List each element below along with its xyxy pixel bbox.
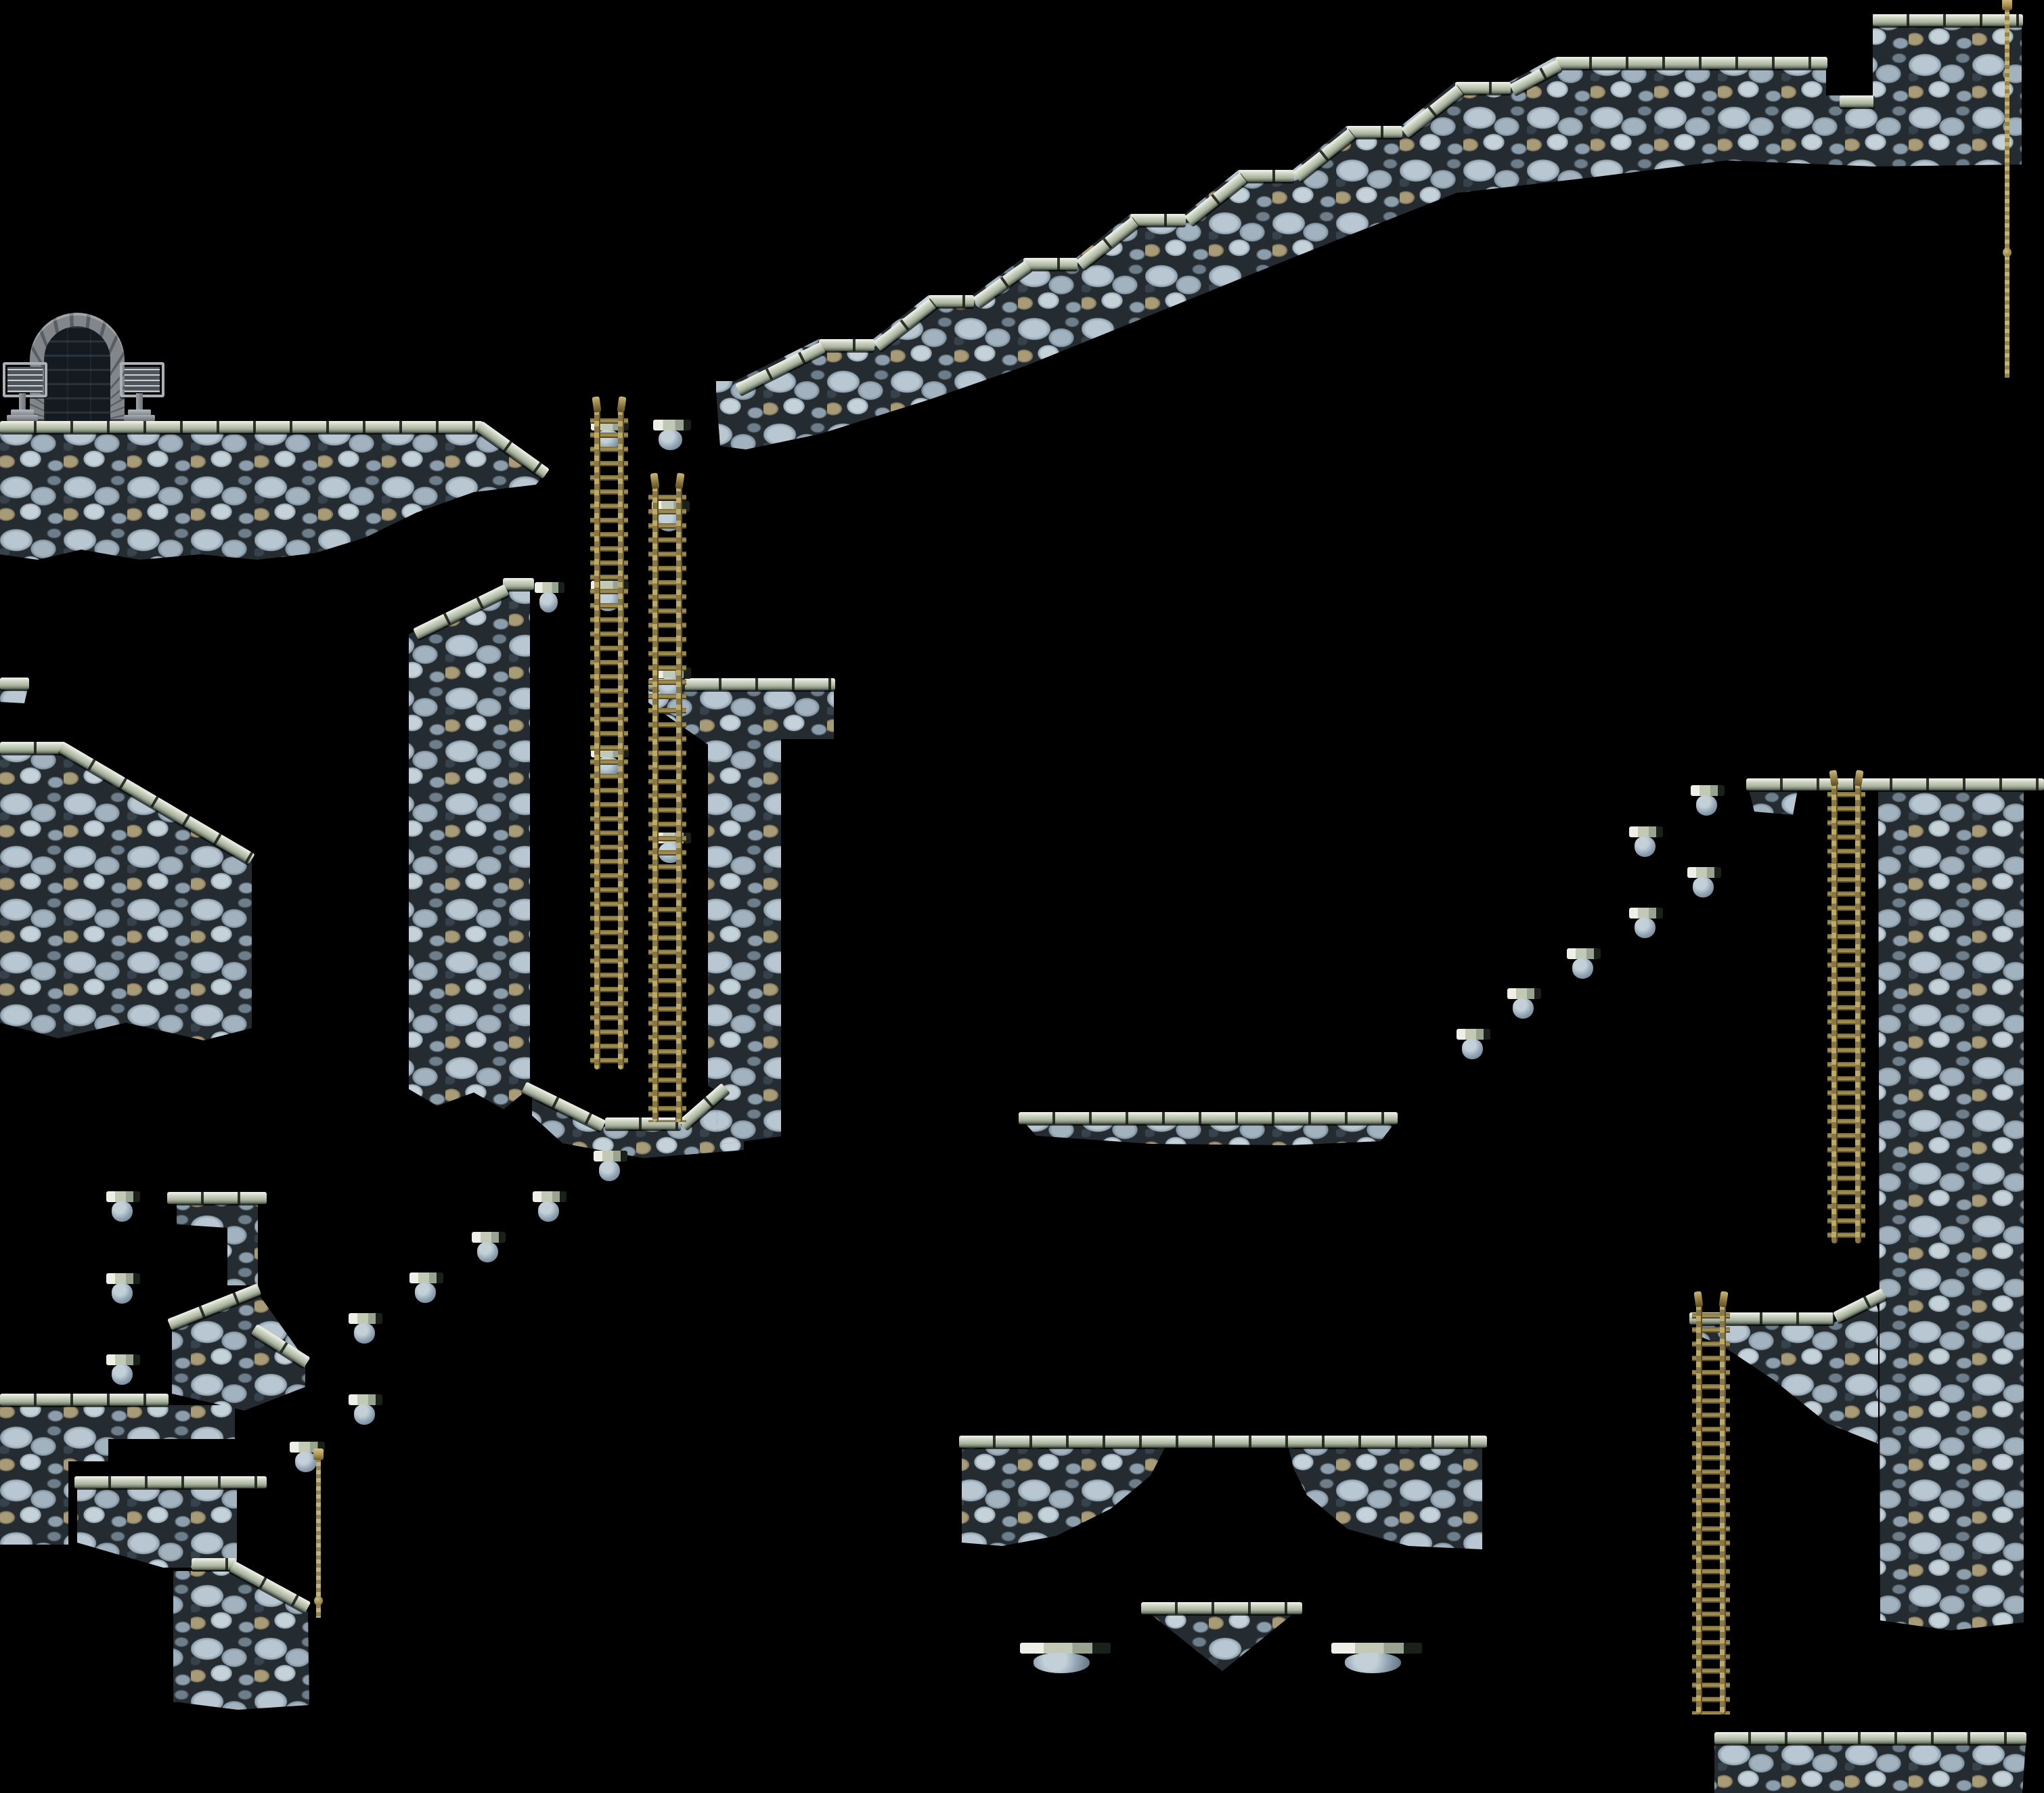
ladder-rail-left xyxy=(1831,783,1838,1243)
stepping-stone-cap xyxy=(1331,1643,1422,1654)
stepping-stone-cap xyxy=(1507,988,1541,999)
ladder-rail-right xyxy=(1855,783,1861,1243)
ladder-rail-left xyxy=(1696,1304,1702,1714)
stepping-stone-block xyxy=(106,1273,140,1304)
ladder-anchor-post xyxy=(617,396,626,412)
stepping-stone-rock xyxy=(1462,1039,1483,1059)
stepping-stone-block xyxy=(1457,1029,1490,1060)
stepping-stone-cap xyxy=(1687,867,1721,878)
stepping-stone-cap xyxy=(106,1354,140,1365)
stepping-stone-block xyxy=(409,1272,443,1304)
stepping-stone-block xyxy=(1507,988,1541,1019)
ladder-anchor-post xyxy=(675,472,684,489)
stepping-stone-block xyxy=(472,1232,506,1263)
ladder-anchor-post xyxy=(1854,770,1863,786)
stepping-stone-rock xyxy=(112,1283,133,1304)
stepping-stone-block xyxy=(1629,908,1663,939)
stepping-stone-cap xyxy=(1629,826,1663,837)
stepping-stone-rock xyxy=(415,1283,436,1303)
stepping-stone-rock xyxy=(1696,795,1717,816)
stepping-stone-rock xyxy=(1513,998,1534,1019)
shaft-ladder-right[interactable] xyxy=(648,486,686,1122)
stepping-stone-rock xyxy=(354,1404,375,1425)
stepping-stone-block xyxy=(106,1354,140,1386)
ladder-rail-left xyxy=(652,486,659,1122)
stepping-stone-block xyxy=(349,1313,382,1344)
stepping-stone-rock xyxy=(112,1201,133,1222)
stepping-stone-cap xyxy=(106,1191,140,1202)
stepping-stone-cap xyxy=(106,1273,140,1284)
rope-anchor-peg xyxy=(2002,0,2012,10)
stepping-stone-cap xyxy=(535,582,564,593)
stepping-stone-cap xyxy=(349,1313,382,1324)
stepping-stone-block xyxy=(533,1191,566,1222)
stepping-stone-cap xyxy=(1567,948,1601,959)
ladder-rail-right xyxy=(618,409,624,1069)
stepping-stone-block xyxy=(1691,785,1725,816)
top-right-rope[interactable] xyxy=(2005,4,2009,378)
stepping-stone-block xyxy=(349,1394,382,1425)
sign-base-step xyxy=(124,415,155,421)
stepping-stone-cap xyxy=(409,1272,443,1283)
stepping-stone-block xyxy=(653,420,691,451)
stepping-stone-block xyxy=(535,582,564,613)
stepping-stone-block xyxy=(1020,1643,1111,1674)
stepping-stone-rock xyxy=(659,430,682,450)
stepping-stone-rock xyxy=(112,1365,133,1385)
stepping-stone-cap xyxy=(1457,1029,1490,1040)
ladder-anchor-post xyxy=(1693,1291,1703,1307)
lowerleft-rope[interactable] xyxy=(316,1454,321,1618)
stepping-stone-rock xyxy=(477,1242,498,1262)
ladder-rail-left xyxy=(594,409,600,1069)
shaft-ladder-left[interactable] xyxy=(590,409,628,1069)
rope-anchor-peg xyxy=(313,1448,324,1460)
sign-base-step xyxy=(7,415,38,421)
sign-post xyxy=(19,393,26,411)
ladder-rail-right xyxy=(676,486,682,1122)
ladder-anchor-post xyxy=(1718,1291,1728,1307)
stepping-stone-rock xyxy=(354,1323,375,1344)
bottom-right-ladder[interactable] xyxy=(1692,1304,1730,1714)
stepping-stone-rock xyxy=(1034,1653,1090,1673)
ladder-rail-right xyxy=(1720,1304,1726,1714)
stepping-stone-rock xyxy=(1345,1653,1401,1673)
stepping-stone-cap xyxy=(472,1232,506,1243)
stepping-stone-cap xyxy=(594,1151,627,1161)
sign-plaque xyxy=(3,362,47,397)
stepping-stone-block xyxy=(106,1191,140,1222)
stepping-stone-block xyxy=(1567,948,1601,979)
ladder-anchor-post xyxy=(1829,770,1838,786)
stepping-stone-cap xyxy=(1691,785,1725,796)
stepping-stone-cap xyxy=(653,420,691,430)
stepping-stone-rock xyxy=(1635,918,1656,938)
stepping-stone-block xyxy=(1331,1643,1422,1674)
stepping-stone-rock xyxy=(538,1201,559,1222)
ladder-anchor-post xyxy=(650,472,659,489)
stepping-stone-block xyxy=(1687,867,1721,898)
sign-plaque xyxy=(120,362,164,397)
stepping-stone-cap xyxy=(1629,908,1663,918)
stepping-stone-rock xyxy=(1693,877,1714,898)
rope-knot xyxy=(314,1596,323,1606)
stepping-stone-cap xyxy=(533,1191,566,1202)
level xyxy=(0,0,2044,1793)
stepping-stone-rock xyxy=(1572,958,1593,979)
sign-post xyxy=(136,393,143,411)
stone-sign xyxy=(3,362,43,421)
stone-sign xyxy=(120,362,160,421)
stepping-stone-rock xyxy=(1635,837,1656,857)
door-opening xyxy=(44,326,110,421)
right-mid-ladder[interactable] xyxy=(1827,783,1865,1243)
ladder-anchor-post xyxy=(592,396,601,412)
stepping-stone-block xyxy=(594,1151,627,1182)
stepping-stone-cap xyxy=(349,1394,382,1405)
stepping-stone-block xyxy=(1629,826,1663,858)
object-layer xyxy=(0,0,2044,1793)
stepping-stone-cap xyxy=(1020,1643,1111,1654)
rope-knot xyxy=(2003,248,2012,257)
stepping-stone-rock xyxy=(599,1161,620,1181)
stepping-stone-rock xyxy=(539,592,558,613)
